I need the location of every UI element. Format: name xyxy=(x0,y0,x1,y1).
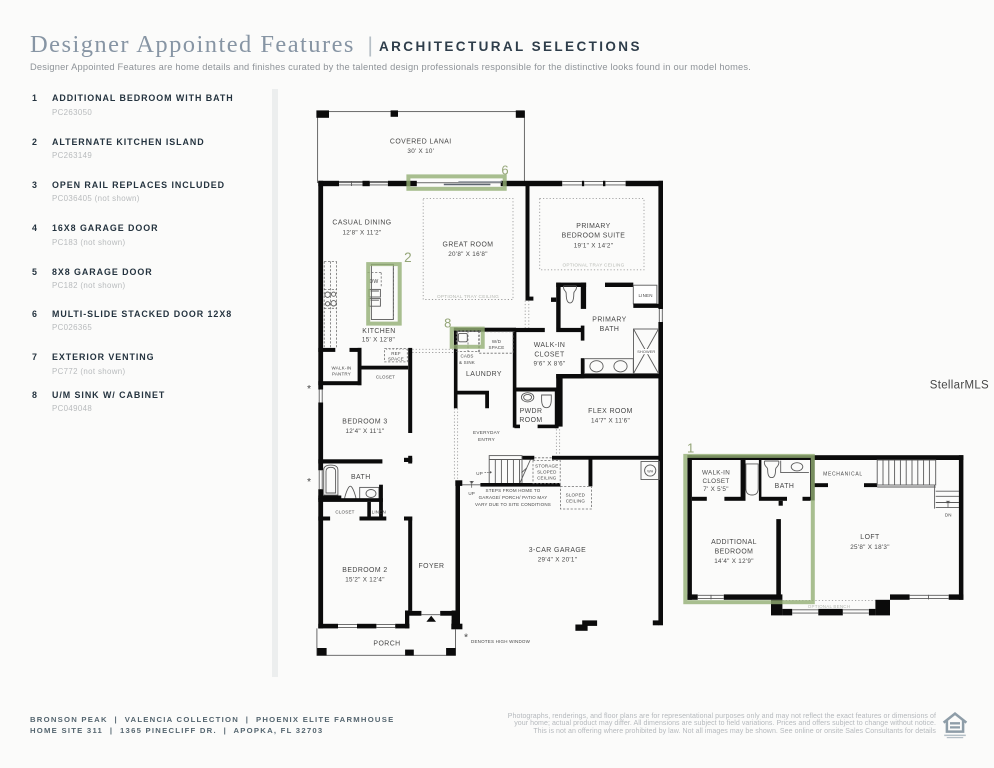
svg-text:SHOWER: SHOWER xyxy=(637,349,655,354)
svg-text:FOYER: FOYER xyxy=(419,563,445,570)
svg-text:DW: DW xyxy=(369,279,378,285)
svg-text:29'4" X 20'1": 29'4" X 20'1" xyxy=(538,557,578,564)
svg-text:3-CAR GARAGE: 3-CAR GARAGE xyxy=(529,547,586,554)
svg-text:1: 1 xyxy=(687,441,694,456)
svg-text:LINEN: LINEN xyxy=(638,293,652,298)
svg-text:OPTIONAL BENCH: OPTIONAL BENCH xyxy=(808,604,850,609)
svg-text:W/D: W/D xyxy=(492,339,502,344)
svg-text:SLOPED: SLOPED xyxy=(566,492,586,497)
svg-text:StellarMLS: StellarMLS xyxy=(930,380,989,392)
svg-text:WALK-IN: WALK-IN xyxy=(332,365,352,370)
svg-text:UP: UP xyxy=(468,491,475,496)
svg-text:VARY DUE TO SITE CONDITIONS: VARY DUE TO SITE CONDITIONS xyxy=(475,502,551,507)
svg-text:WALK-IN: WALK-IN xyxy=(534,342,566,349)
svg-text:SLOPED: SLOPED xyxy=(537,470,557,475)
svg-text:WH: WH xyxy=(647,469,653,473)
svg-text:BATH: BATH xyxy=(351,474,371,481)
svg-text:COVERED LANAI: COVERED LANAI xyxy=(390,138,452,145)
svg-text:20'8" X 16'8": 20'8" X 16'8" xyxy=(448,251,488,258)
svg-text:UP: UP xyxy=(476,471,483,476)
svg-text:12'8" X 11'2": 12'8" X 11'2" xyxy=(342,229,381,236)
svg-text:PWDR: PWDR xyxy=(520,408,543,415)
svg-text:15' X 12'8": 15' X 12'8" xyxy=(362,336,395,343)
svg-text:GREAT ROOM: GREAT ROOM xyxy=(443,241,494,248)
svg-text:LOFT: LOFT xyxy=(860,534,880,541)
svg-text:CASUAL DINING: CASUAL DINING xyxy=(332,220,391,227)
svg-text:BATH: BATH xyxy=(775,483,795,490)
svg-text:BEDROOM 3: BEDROOM 3 xyxy=(342,418,387,425)
svg-text:CEILING: CEILING xyxy=(537,476,557,481)
svg-text:STEPS FROM HOME TO: STEPS FROM HOME TO xyxy=(486,488,541,493)
svg-text:BATH: BATH xyxy=(600,326,620,333)
svg-text:8: 8 xyxy=(444,316,451,331)
svg-text:ADDITIONAL: ADDITIONAL xyxy=(711,539,757,546)
svg-text:SPACE: SPACE xyxy=(489,345,505,350)
svg-text:2: 2 xyxy=(404,250,412,265)
svg-text:ENTRY: ENTRY xyxy=(478,437,496,442)
svg-text:LAUNDRY: LAUNDRY xyxy=(466,371,502,378)
svg-text:14'7" X 11'6": 14'7" X 11'6" xyxy=(591,418,630,425)
svg-text:*: * xyxy=(464,632,468,644)
svg-text:DN: DN xyxy=(945,512,952,517)
svg-text:7' X 5'5": 7' X 5'5" xyxy=(703,486,729,493)
svg-text:OPTIONAL TRAY CEILING: OPTIONAL TRAY CEILING xyxy=(562,263,624,268)
svg-text:30' X 10': 30' X 10' xyxy=(407,148,434,155)
svg-text:& SINK: & SINK xyxy=(459,360,475,365)
svg-text:PANTRY: PANTRY xyxy=(332,371,351,376)
svg-text:ROOM: ROOM xyxy=(519,417,542,424)
svg-text:BEDROOM: BEDROOM xyxy=(715,548,754,555)
svg-text:KITCHEN: KITCHEN xyxy=(362,328,395,335)
svg-text:CABS: CABS xyxy=(460,354,473,359)
svg-text:19'1" X 14'2": 19'1" X 14'2" xyxy=(574,242,614,249)
svg-text:GARAGE/ PORCH/ PATIO MAY: GARAGE/ PORCH/ PATIO MAY xyxy=(479,495,548,500)
svg-text:9'6" X 8'6": 9'6" X 8'6" xyxy=(534,360,566,367)
svg-text:PRIMARY: PRIMARY xyxy=(592,317,626,324)
svg-text:BEDROOM 2: BEDROOM 2 xyxy=(342,567,387,574)
svg-text:OPTIONAL TRAY CEILING: OPTIONAL TRAY CEILING xyxy=(437,294,499,299)
svg-text:PORCH: PORCH xyxy=(373,641,400,648)
svg-text:FLEX ROOM: FLEX ROOM xyxy=(588,408,633,415)
svg-text:DENOTES HIGH WINDOW: DENOTES HIGH WINDOW xyxy=(471,639,531,644)
svg-text:LINEN: LINEN xyxy=(372,510,386,515)
svg-text:CLOSET: CLOSET xyxy=(335,510,354,515)
svg-text:CLOSET: CLOSET xyxy=(376,375,395,380)
svg-text:*: * xyxy=(307,383,311,395)
svg-text:PRIMARY: PRIMARY xyxy=(576,223,610,230)
svg-text:BEDROOM SUITE: BEDROOM SUITE xyxy=(562,233,626,240)
svg-text:CEILING: CEILING xyxy=(566,498,586,503)
svg-text:REF: REF xyxy=(391,351,401,356)
svg-text:6: 6 xyxy=(501,163,508,178)
svg-text:15'2" X 12'4": 15'2" X 12'4" xyxy=(345,577,385,584)
svg-text:WALK-IN: WALK-IN xyxy=(702,469,730,476)
svg-text:SPACE: SPACE xyxy=(388,356,404,361)
svg-text:EVERYDAY: EVERYDAY xyxy=(473,430,501,435)
svg-text:STORAGE: STORAGE xyxy=(535,464,558,469)
svg-text:12'4" X 11'1": 12'4" X 11'1" xyxy=(345,428,384,435)
svg-text:*: * xyxy=(307,476,311,488)
svg-text:14'4" X 12'9": 14'4" X 12'9" xyxy=(714,558,754,565)
svg-text:CLOSET: CLOSET xyxy=(534,351,565,358)
svg-text:CLOSET: CLOSET xyxy=(703,478,730,485)
svg-text:MECHANICAL: MECHANICAL xyxy=(823,471,863,477)
svg-text:25'8" X 18'3": 25'8" X 18'3" xyxy=(850,544,890,551)
